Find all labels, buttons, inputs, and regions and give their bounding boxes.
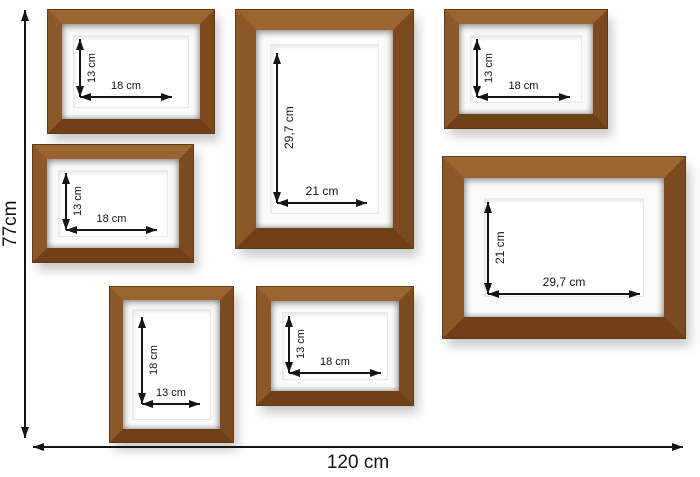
gallery-wall-dimension-diagram: 13 cm 18 cm 13 cm 18 cm 18 cm 13 cm xyxy=(0,0,700,477)
frame-wood-border xyxy=(443,157,685,338)
width-dimension-label: 29,7 cm xyxy=(488,274,640,290)
frame-center: 29,7 cm 21 cm xyxy=(236,10,413,248)
frame-mat xyxy=(271,301,399,391)
width-dimension-label: 18 cm xyxy=(80,78,172,94)
frame-wood-border xyxy=(445,10,607,128)
width-dimension-arrow xyxy=(142,403,200,405)
frame-wood-border xyxy=(33,145,193,262)
frame-top-right: 13 cm 18 cm xyxy=(445,10,607,128)
frame-wood-border xyxy=(236,10,413,248)
frame-top-left: 13 cm 18 cm xyxy=(48,10,214,133)
width-dimension-label: 18 cm xyxy=(477,78,570,94)
width-dimension-arrow xyxy=(277,202,367,204)
width-dimension-label: 18 cm xyxy=(66,211,157,227)
height-dimension-arrow xyxy=(276,53,278,203)
width-dimension-arrow xyxy=(477,96,570,98)
width-dimension-arrow xyxy=(80,96,172,98)
frame-middle-left: 13 cm 18 cm xyxy=(33,145,193,262)
width-dimension-label: 13 cm xyxy=(142,385,200,401)
width-dimension-label: 21 cm xyxy=(277,183,367,199)
wall-height-arrow xyxy=(24,10,26,438)
frame-wood-border xyxy=(48,10,214,133)
width-dimension-label: 18 cm xyxy=(289,354,381,370)
frame-bottom-left: 18 cm 13 cm xyxy=(110,287,233,442)
height-dimension-label: 29,7 cm xyxy=(280,53,298,203)
frame-wood-border xyxy=(257,287,413,405)
frame-bottom-center: 13 cm 18 cm xyxy=(257,287,413,405)
wall-width-label: 120 cm xyxy=(33,452,683,474)
frame-right: 21 cm 29,7 cm xyxy=(443,157,685,338)
width-dimension-arrow xyxy=(289,372,381,374)
wall-width-arrow xyxy=(33,446,683,448)
width-dimension-arrow xyxy=(488,293,640,295)
frame-wood-border xyxy=(110,287,233,442)
width-dimension-arrow xyxy=(66,229,157,231)
wall-height-label: 77cm xyxy=(0,10,23,438)
